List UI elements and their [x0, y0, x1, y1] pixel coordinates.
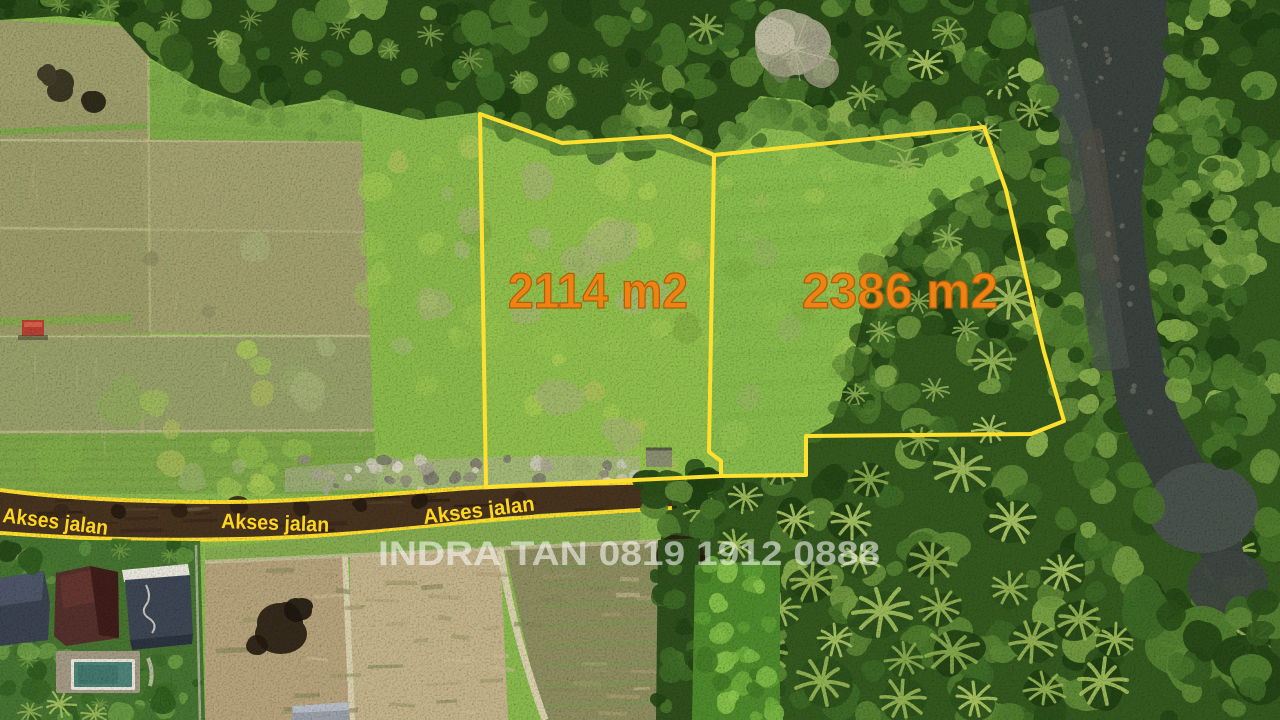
svg-text:2114 m2: 2114 m2	[508, 263, 688, 319]
svg-text:INDRA TAN 0819 1912 0888: INDRA TAN 0819 1912 0888	[378, 535, 880, 573]
svg-text:2386 m2: 2386 m2	[802, 263, 998, 319]
svg-text:Akses jalan: Akses jalan	[221, 510, 330, 537]
